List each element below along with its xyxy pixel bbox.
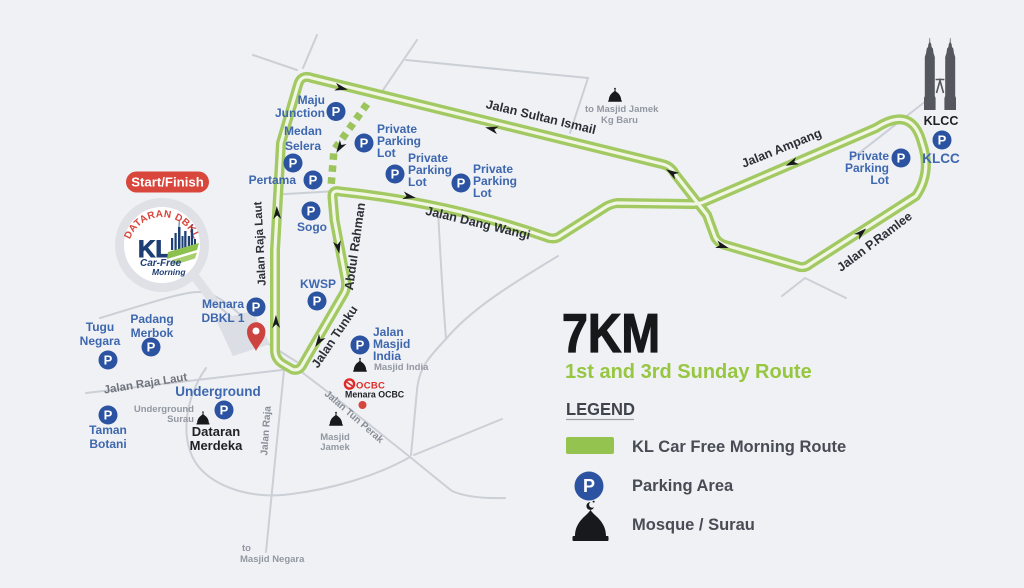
svg-text:Pertama: Pertama <box>249 173 297 187</box>
svg-text:to: to <box>242 543 251 554</box>
svg-text:Taman: Taman <box>89 423 127 437</box>
svg-text:Underground: Underground <box>175 384 261 399</box>
svg-text:Maju: Maju <box>298 93 325 107</box>
svg-text:Start/Finish: Start/Finish <box>131 175 204 190</box>
svg-text:KL Car Free Morning Route: KL Car Free Morning Route <box>632 438 846 456</box>
svg-text:Medan: Medan <box>284 124 322 138</box>
svg-text:Selera: Selera <box>285 139 321 153</box>
svg-text:Sogo: Sogo <box>297 220 327 234</box>
svg-text:7KM: 7KM <box>562 302 660 364</box>
svg-text:Masjid Negara: Masjid Negara <box>240 554 305 565</box>
svg-text:Lot: Lot <box>408 175 427 189</box>
svg-text:Lot: Lot <box>870 173 889 187</box>
svg-text:LEGEND: LEGEND <box>566 398 635 419</box>
svg-text:KLCC: KLCC <box>924 114 959 128</box>
svg-text:1st and 3rd Sunday Route: 1st and 3rd Sunday Route <box>565 361 812 383</box>
svg-text:Dataran: Dataran <box>192 424 240 439</box>
svg-text:Padang: Padang <box>130 312 173 326</box>
svg-text:Kg Baru: Kg Baru <box>601 115 638 126</box>
svg-text:Botani: Botani <box>89 437 126 451</box>
svg-text:Surau: Surau <box>167 414 194 425</box>
svg-text:P: P <box>583 476 595 496</box>
svg-text:Jamek: Jamek <box>320 442 350 453</box>
svg-text:DBKL 1: DBKL 1 <box>201 311 244 325</box>
svg-text:Negara: Negara <box>80 334 121 348</box>
svg-text:India: India <box>373 349 401 363</box>
svg-text:Junction: Junction <box>275 106 325 120</box>
svg-text:Morning: Morning <box>152 267 186 277</box>
svg-text:KWSP: KWSP <box>300 277 336 291</box>
svg-text:Mosque / Surau: Mosque / Surau <box>632 516 755 534</box>
svg-text:Merbok: Merbok <box>131 326 174 340</box>
svg-text:Lot: Lot <box>377 146 396 160</box>
svg-text:Tugu: Tugu <box>86 320 114 334</box>
svg-text:KLCC: KLCC <box>922 151 960 166</box>
svg-text:to Masjid Jamek: to Masjid Jamek <box>585 104 659 115</box>
svg-text:Menara OCBC: Menara OCBC <box>345 390 405 400</box>
svg-text:Parking Area: Parking Area <box>632 477 734 495</box>
svg-text:Lot: Lot <box>473 186 492 200</box>
svg-text:Masjid India: Masjid India <box>374 362 429 373</box>
svg-text:Menara: Menara <box>202 297 244 311</box>
svg-text:Merdeka: Merdeka <box>190 438 244 453</box>
